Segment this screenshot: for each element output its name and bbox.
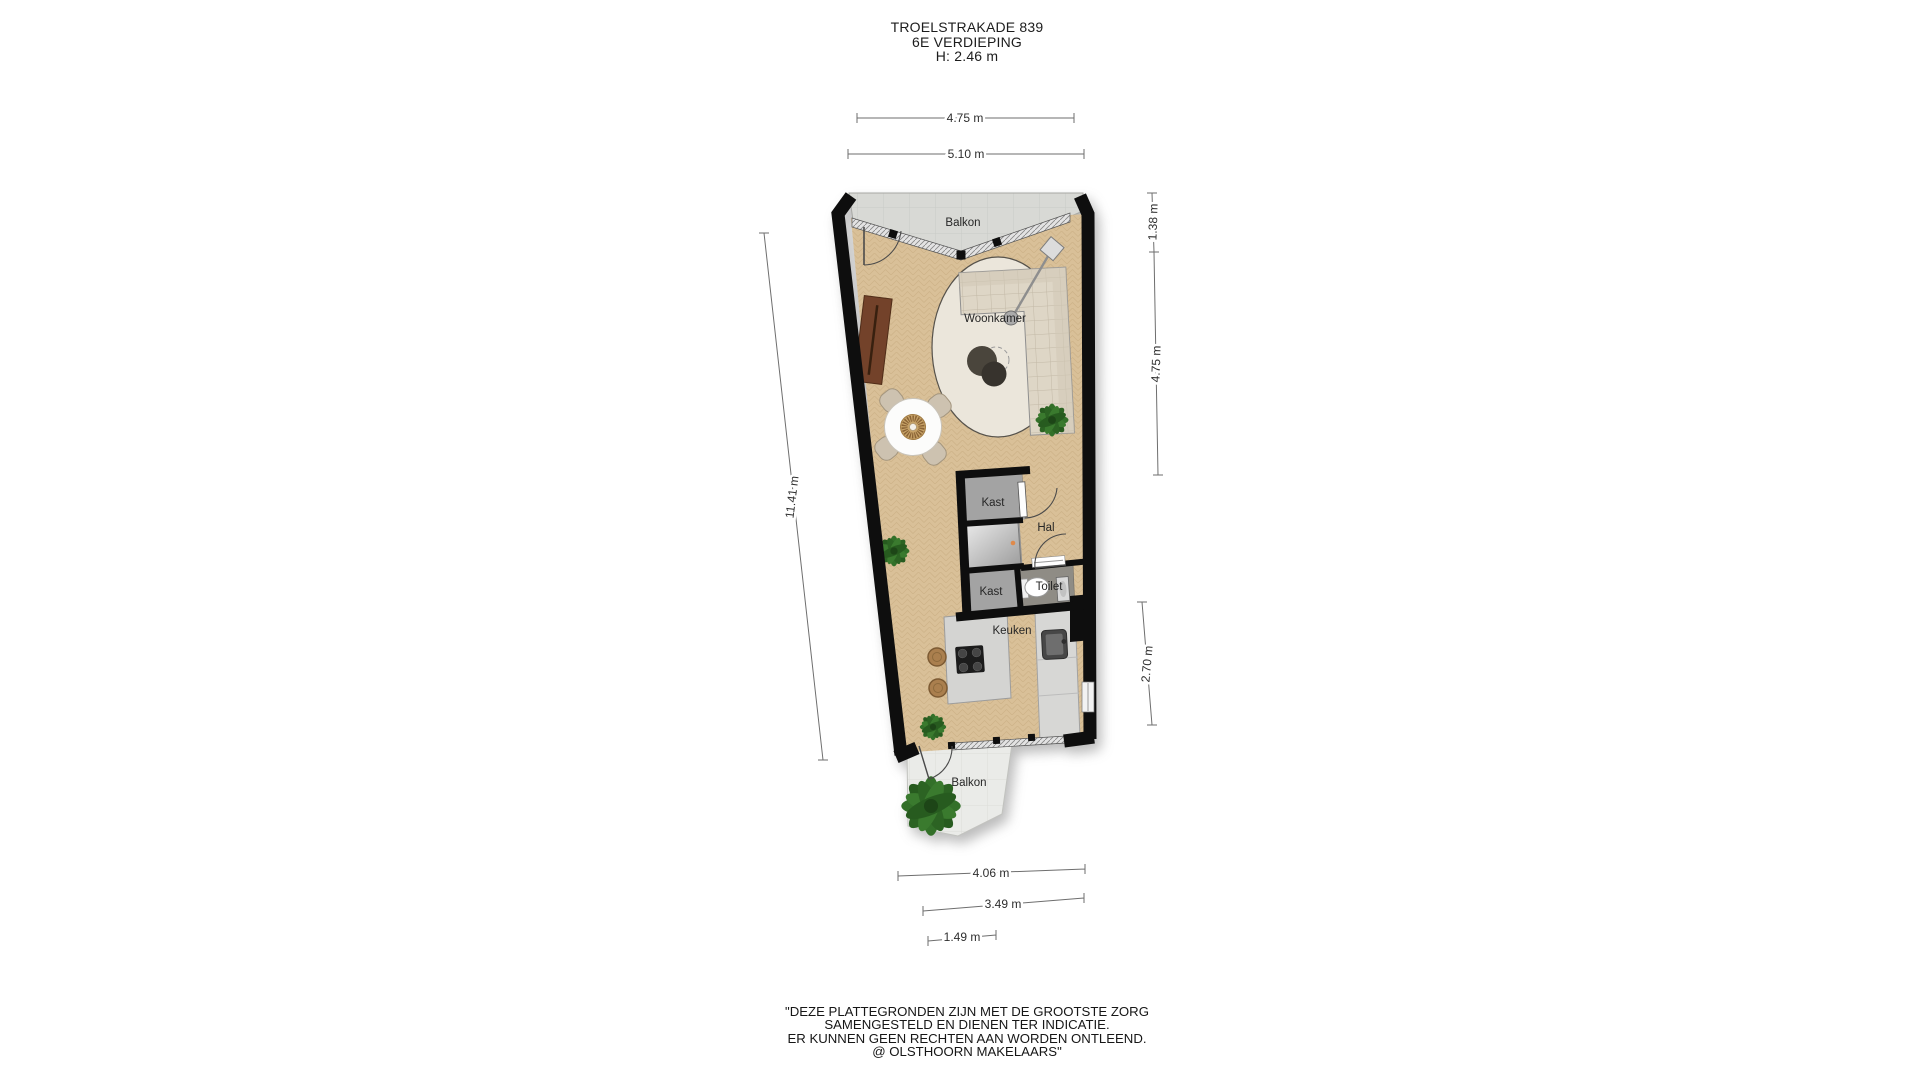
kitchen-sink — [1041, 629, 1067, 659]
building — [838, 193, 1094, 836]
floor-plan-drawing: 4.75 m 5.10 m 1.38 m 4.75 m 2.70 m 11.41… — [0, 0, 1920, 1080]
disclaimer-line: "DEZE PLATTEGRONDEN ZIJN MET DE GROOTSTE… — [0, 1005, 1920, 1018]
room-label-kast-1: Kast — [981, 497, 1005, 509]
room-label-balkon-bottom: Balkon — [951, 777, 986, 789]
room-label-woonkamer: Woonkamer — [964, 313, 1026, 325]
entry-window — [1082, 682, 1094, 712]
room-label-balkon-top: Balkon — [945, 217, 980, 229]
plant — [1036, 404, 1069, 437]
disclaimer-line: @ OLSTHOORN MAKELAARS" — [0, 1045, 1920, 1058]
dim-label-bottom-outer: 4.06 m — [973, 866, 1010, 880]
dim-label-top-outer: 5.10 m — [948, 147, 985, 161]
dim-label-bottom-middle: 3.49 m — [985, 897, 1022, 911]
room-label-kast-2: Kast — [979, 586, 1003, 598]
switch-dot — [1011, 541, 1016, 546]
dim-label-right-bottom: 2.70 m — [1138, 645, 1155, 683]
room-label-hal: Hal — [1037, 522, 1054, 534]
dim-label-left-total: 11.41 m — [782, 475, 801, 519]
disclaimer: "DEZE PLATTEGRONDEN ZIJN MET DE GROOTSTE… — [0, 1005, 1920, 1059]
room-label-toilet: Toilet — [1036, 581, 1064, 593]
stove — [955, 645, 985, 674]
plant — [920, 714, 946, 740]
disclaimer-line: SAMENGESTELD EN DIENEN TER INDICATIE. — [0, 1018, 1920, 1031]
room-label-keuken: Keuken — [992, 625, 1031, 637]
dim-label-right-middle: 4.75 m — [1148, 345, 1163, 382]
disclaimer-line: ER KUNNEN GEEN RECHTEN AAN WORDEN ONTLEE… — [0, 1032, 1920, 1045]
dim-label-bottom-inner: 1.49 m — [944, 930, 981, 944]
dim-label-top-inner: 4.75 m — [947, 111, 984, 125]
dim-label-right-top: 1.38 m — [1145, 203, 1160, 240]
floorplan-page: TROELSTRAKADE 839 6E VERDIEPING H: 2.46 … — [0, 0, 1920, 1080]
